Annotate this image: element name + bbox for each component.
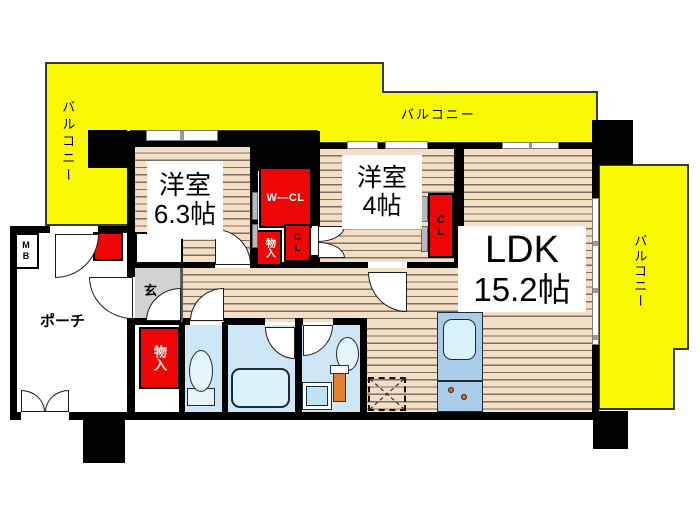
ldk-label: LDK 15.2帖 bbox=[458, 226, 586, 312]
bedroom2-size: 4帖 bbox=[363, 192, 402, 220]
hall-storage-label: 物入 bbox=[150, 345, 169, 371]
genkan-edge-line bbox=[181, 268, 183, 322]
pillar-bottom-left bbox=[83, 413, 125, 463]
stove-burner-a bbox=[448, 387, 454, 393]
porch-alcove-opening bbox=[50, 226, 98, 233]
wall-porch-right bbox=[127, 131, 135, 412]
washer bbox=[306, 386, 328, 406]
bedroom1-label: 洋室 6.3帖 bbox=[147, 161, 223, 239]
wall-closet-block bbox=[250, 131, 320, 171]
ldk-closet-door-mark-b bbox=[421, 226, 428, 252]
bedroom2-name: 洋室 bbox=[357, 164, 407, 192]
wall-hall-top-c bbox=[407, 262, 464, 268]
refrigerator-cross-mark bbox=[370, 379, 404, 409]
balcony-right-label: バルコニー bbox=[632, 234, 646, 309]
hall-closet: CL bbox=[284, 224, 311, 262]
walkin-closet-label: W—CL bbox=[266, 192, 304, 204]
ldk-closet-label: CL bbox=[435, 214, 447, 238]
bedroom2-label: 洋室 4帖 bbox=[342, 155, 422, 229]
ldk-top-window bbox=[502, 142, 559, 149]
porch-gate-opening bbox=[21, 411, 69, 420]
ldk-closet-door-mark-a bbox=[421, 196, 428, 222]
bedroom2-window-b bbox=[385, 141, 428, 149]
bedroom2-window-a bbox=[347, 141, 378, 149]
genkan-label: 玄 bbox=[144, 284, 157, 298]
counter-divider bbox=[437, 380, 483, 382]
bathtub bbox=[231, 368, 290, 408]
wall-bath-wash bbox=[295, 322, 302, 412]
bedroom1-size: 6.3帖 bbox=[154, 200, 216, 229]
wall-wcl-bedroom2 bbox=[311, 149, 320, 226]
pillar-top-left bbox=[88, 130, 127, 168]
ldk-name: LDK bbox=[485, 229, 559, 272]
porch-label: ポーチ bbox=[40, 314, 85, 331]
basin-cabinet bbox=[333, 373, 346, 402]
pillar-top-right bbox=[592, 120, 633, 165]
ldk-balcony-sliding-door bbox=[592, 198, 599, 345]
bedroom1-balcony-window bbox=[146, 130, 218, 141]
ldk-size: 15.2帖 bbox=[473, 272, 570, 309]
wall-wash-kitchen bbox=[360, 318, 367, 412]
kitchen-sink bbox=[443, 319, 476, 360]
wall-hall-top-a bbox=[127, 262, 215, 268]
wcl-door-mark-a bbox=[252, 192, 258, 220]
hall-storage: 物入 bbox=[139, 327, 180, 389]
refrigerator-space bbox=[368, 377, 406, 411]
bedroom1-name: 洋室 bbox=[159, 171, 211, 200]
balcony-left-label: バルコニー bbox=[60, 100, 74, 185]
stove-burner-b bbox=[461, 394, 467, 400]
entry-storage-label: 物入 bbox=[262, 238, 277, 258]
wall-left bbox=[10, 226, 17, 420]
wall-hall-bottom-b bbox=[224, 318, 265, 325]
ldk-closet: CL bbox=[428, 193, 454, 258]
walkin-closet: W—CL bbox=[259, 167, 312, 228]
floor-hallway bbox=[183, 268, 464, 322]
pillar-bottom-right bbox=[593, 411, 628, 449]
floorplan-canvas: M B 物入 W—CL 物入 C bbox=[0, 0, 700, 525]
balcony-top-label: バルコニー bbox=[401, 108, 476, 122]
entry-storage: 物入 bbox=[256, 230, 282, 266]
meter-box-label: M B bbox=[22, 240, 30, 262]
hall-closet-label: CL bbox=[292, 232, 303, 254]
wall-toilet-bath bbox=[222, 322, 228, 412]
wcl-door-mark-b bbox=[252, 224, 258, 248]
toilet-bowl bbox=[189, 350, 213, 392]
